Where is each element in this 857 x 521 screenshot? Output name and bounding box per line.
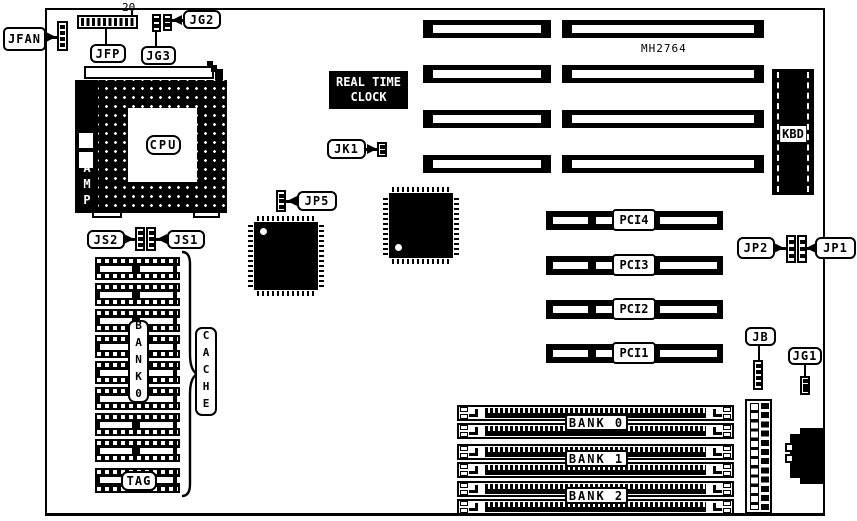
bank0-memory-label: BANK 0 (565, 414, 628, 431)
jg3-callout: JG3 (141, 46, 176, 65)
jfp-header (77, 15, 138, 29)
pci2-label: PCI2 (612, 298, 656, 320)
isa-slot-segment (562, 20, 764, 38)
jb-callout: JB (745, 327, 776, 346)
din-notch (785, 443, 794, 452)
jfp-leader-line (105, 29, 107, 45)
isa-slot-segment (562, 65, 764, 83)
din-connector-step (800, 428, 823, 436)
jk1-label: JK1 (334, 142, 359, 156)
qfp-chip-1 (248, 216, 324, 296)
js-header-a (135, 227, 145, 251)
cpu-label: CPU (146, 135, 181, 155)
js1-label: JS1 (174, 233, 199, 247)
jfp-label: JFP (96, 47, 121, 61)
din-connector-step (800, 476, 823, 484)
jb-header (753, 360, 763, 390)
cache-chip (95, 413, 180, 436)
tag-label: TAG (121, 471, 157, 491)
power-connector (745, 399, 772, 514)
bank1-memory-label: BANK 1 (565, 450, 628, 467)
js-header-b (146, 227, 156, 251)
jg3-label: JG3 (146, 49, 171, 63)
cache-chip (95, 439, 180, 462)
jp2-label: JP2 (744, 241, 769, 255)
jg3-leader-line (155, 32, 157, 47)
isa-slot-segment (562, 110, 764, 128)
pci-slot-1: PCI1 (546, 344, 723, 363)
cache-label: CACHE (195, 327, 217, 416)
jg1-header (800, 376, 810, 395)
jg2-label: JG2 (190, 13, 215, 27)
jfp-pin-count: 20 (122, 1, 135, 14)
amp-label: AMP (80, 161, 94, 209)
jk1-arrow (367, 144, 377, 154)
rtc-label-line2: CLOCK (350, 90, 386, 105)
rtc-chip: REAL TIME CLOCK (329, 71, 408, 109)
jp1-label: JP1 (823, 241, 848, 255)
js1-arrow (157, 234, 167, 244)
jfan-label: JFAN (8, 32, 41, 46)
cpu-retention-bracket (84, 66, 214, 79)
js2-label: JS2 (94, 233, 119, 247)
jfan-header (57, 21, 68, 51)
pci4-label: PCI4 (612, 209, 656, 231)
jk1-callout: JK1 (327, 139, 366, 159)
isa-slot-segment (423, 155, 551, 173)
cache-chip (95, 283, 180, 306)
js2-callout: JS2 (87, 230, 125, 249)
pci3-label: PCI3 (612, 254, 656, 276)
isa-slot-segment (423, 110, 551, 128)
bracket-corner-step (215, 69, 223, 80)
jfan-callout: JFAN (3, 27, 46, 51)
jp5-label: JP5 (305, 194, 330, 208)
isa-slot-segment (423, 20, 551, 38)
pin1-dot (260, 228, 267, 235)
pci-slot-4: PCI4 (546, 211, 723, 230)
jg3-header (152, 14, 161, 32)
din-connector (790, 434, 823, 478)
jk1-header (377, 142, 387, 157)
jp1-callout: JP1 (815, 237, 856, 259)
rtc-label-line1: REAL TIME (336, 75, 401, 90)
cache-chip (95, 257, 180, 280)
jp5-callout: JP5 (297, 191, 337, 211)
jfp-callout: JFP (90, 44, 126, 63)
jb-leader-line (758, 346, 760, 360)
js2-arrow (124, 234, 134, 244)
jp-header-a (786, 235, 796, 263)
pci1-label: PCI1 (612, 342, 656, 364)
jg1-leader-line (804, 365, 806, 376)
motherboard-diagram: JFAN 20 JFP JG2 JG3 CPU (0, 0, 857, 521)
isa-slot-segment (562, 155, 764, 173)
pci-slot-2: PCI2 (546, 300, 723, 319)
pin1-dot (395, 244, 402, 251)
qfp-chip-2 (383, 187, 459, 264)
jg2-header (163, 14, 172, 31)
jg2-arrow (172, 15, 182, 25)
mh2764-label: MH2764 (641, 42, 687, 55)
jfan-arrow (46, 32, 56, 42)
kbd-label: KBD (780, 126, 806, 142)
amp-regulator: AMP (75, 80, 98, 213)
bank0-label: BANK0 (128, 320, 149, 403)
bank2-memory-label: BANK 2 (565, 487, 628, 504)
jg1-callout: JG1 (788, 347, 822, 365)
isa-slot-segment (423, 65, 551, 83)
jg1-label: JG1 (793, 349, 818, 363)
kbd-chip: KBD (772, 69, 814, 195)
jp2-arrow (774, 243, 784, 253)
jb-label: JB (752, 330, 768, 344)
jg2-callout: JG2 (183, 10, 221, 29)
din-notch (785, 454, 794, 463)
jp2-callout: JP2 (737, 237, 775, 259)
jp5-arrow (287, 196, 297, 206)
js1-callout: JS1 (167, 230, 205, 249)
pci-slot-3: PCI3 (546, 256, 723, 275)
jp5-header (276, 190, 286, 212)
